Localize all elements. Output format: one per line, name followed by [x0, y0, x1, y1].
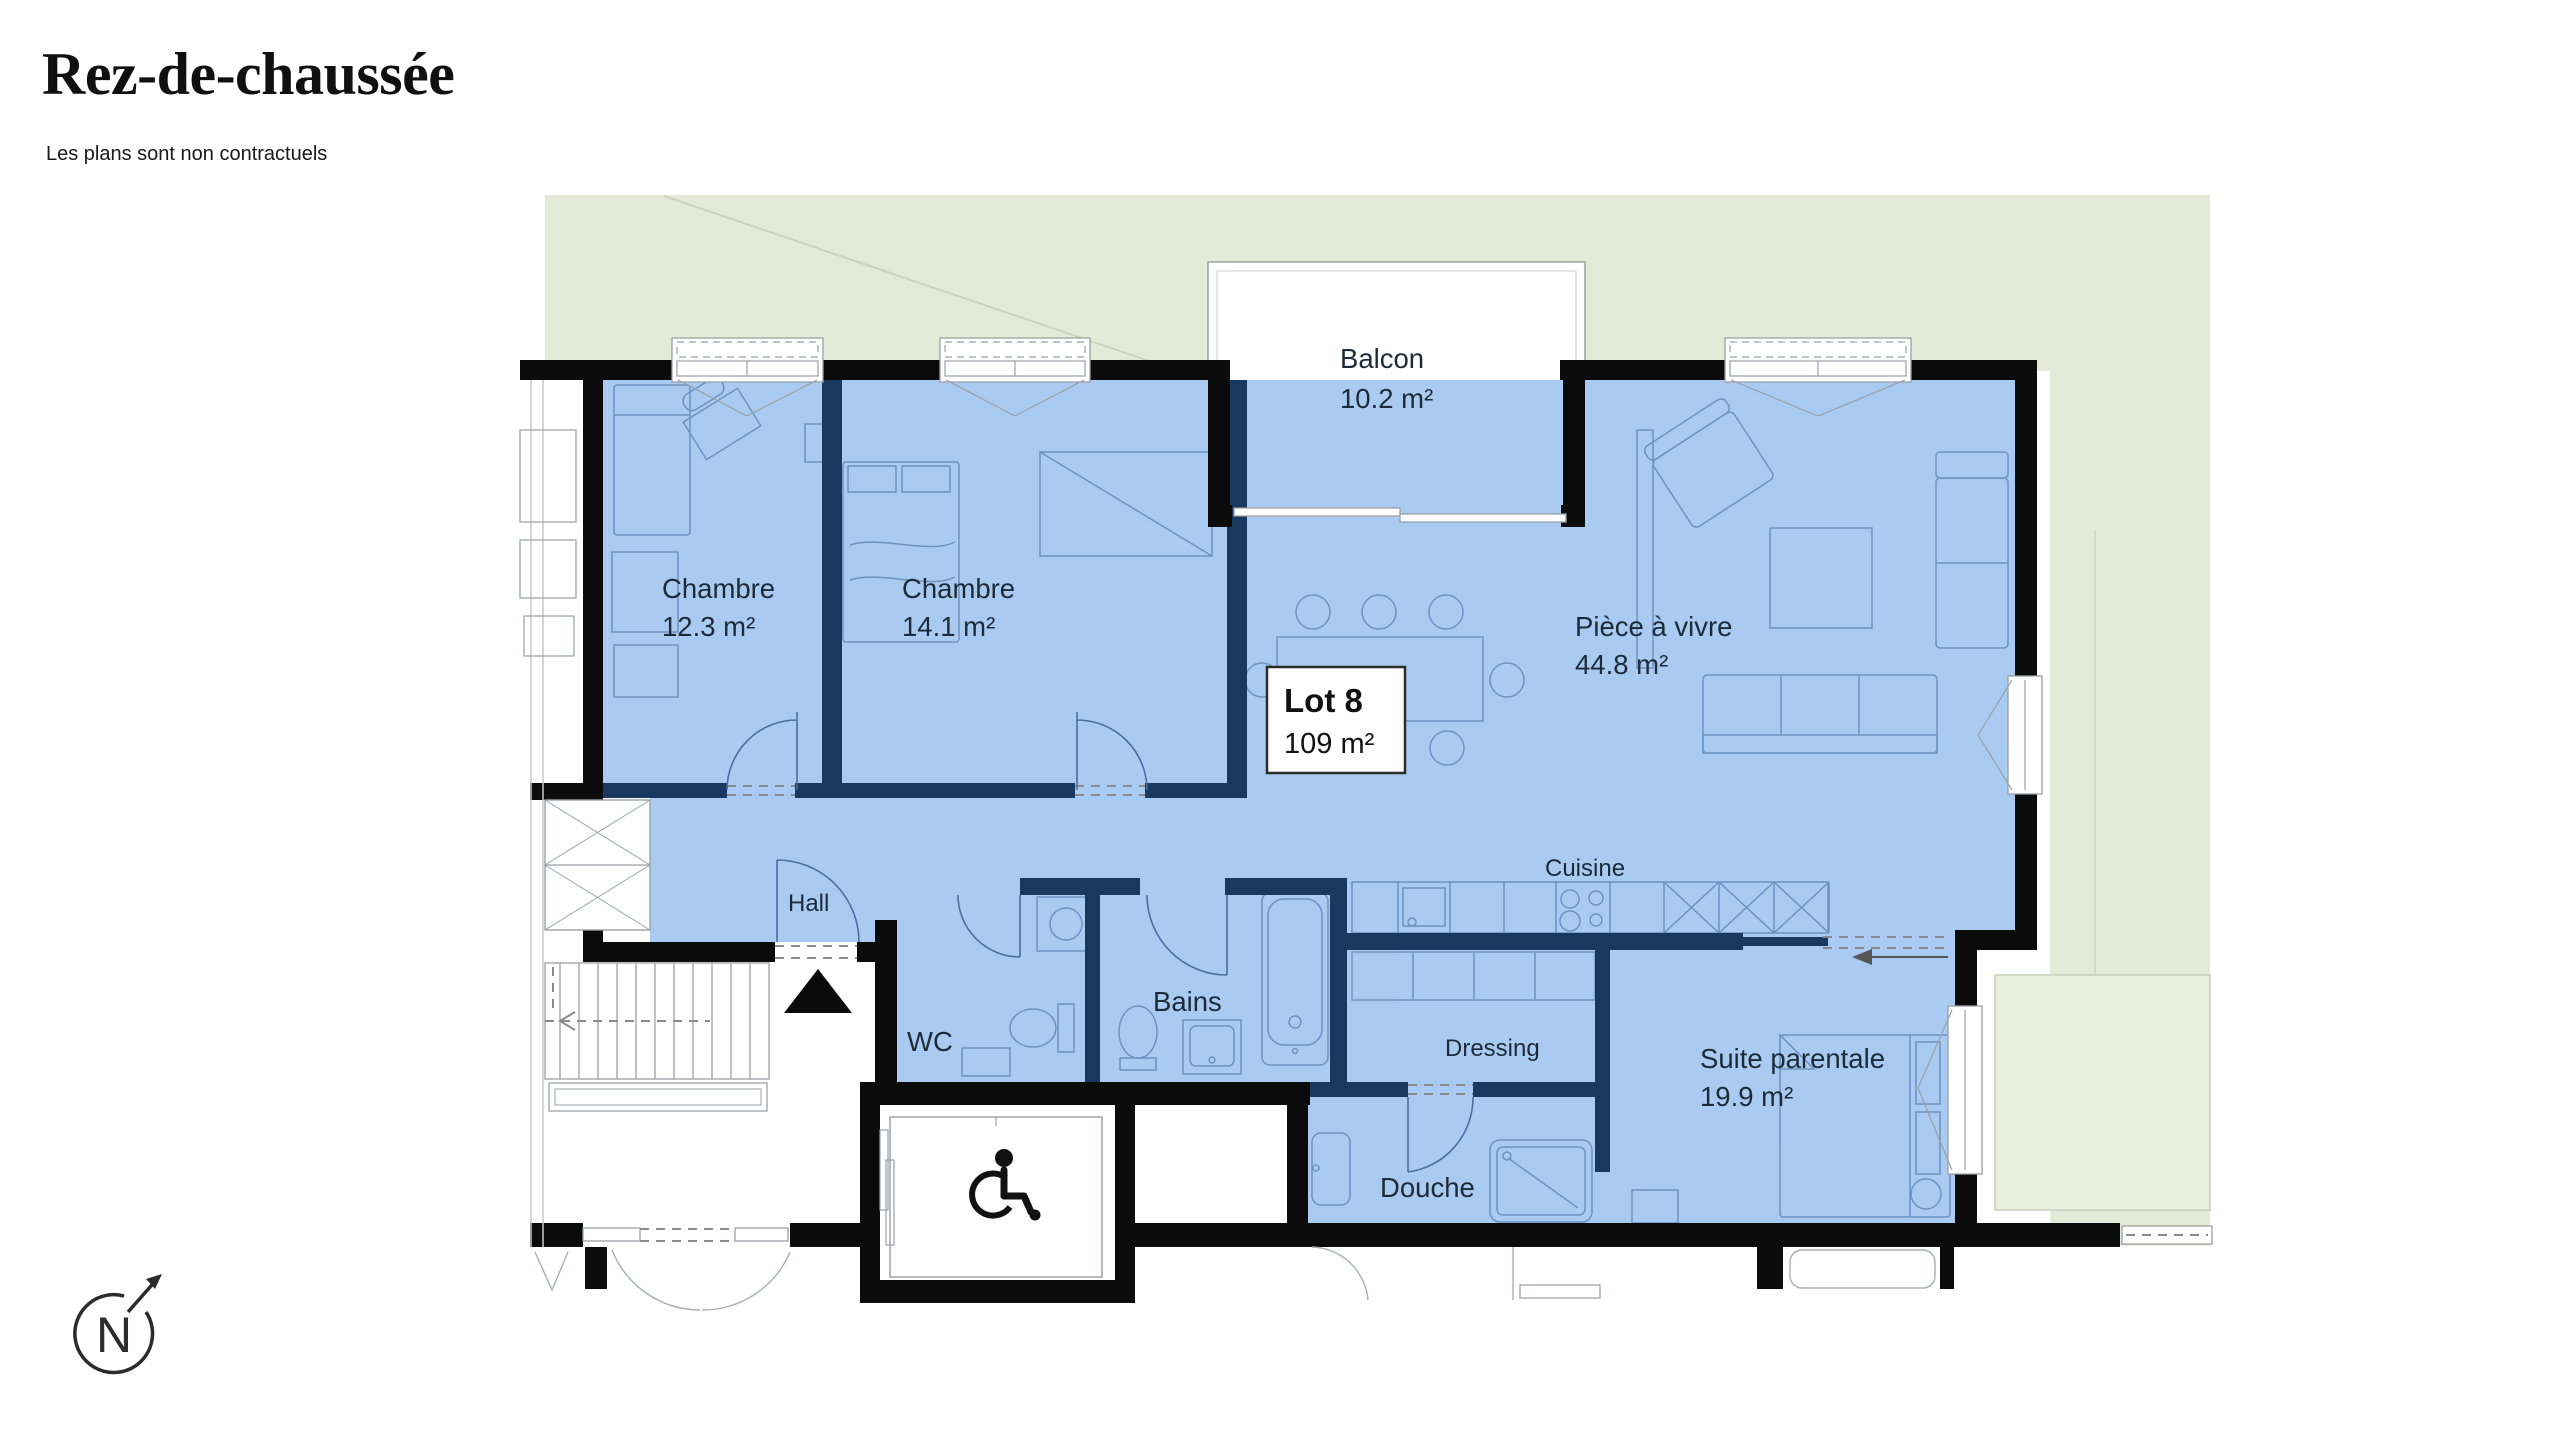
entry-sill	[735, 1228, 788, 1241]
room-area-piece-a-vivre: 44.8 m²	[1575, 649, 1668, 680]
floor-plan: Lot 8 109 m² Balcon 10.2 m² Chambre 12.3…	[0, 0, 2560, 1440]
compass: N	[75, 1274, 162, 1373]
stair-direction-icon	[784, 969, 852, 1013]
duct-shaft	[545, 800, 650, 930]
staircase	[545, 963, 769, 1111]
room-area-balcon: 10.2 m²	[1340, 383, 1433, 414]
room-label-suite-parentale: Suite parentale	[1700, 1043, 1885, 1074]
room-label-balcon: Balcon	[1340, 343, 1424, 374]
room-label-chambre2: Chambre	[902, 573, 1015, 604]
room-label-wc: WC	[907, 1026, 953, 1057]
north-label: N	[96, 1307, 132, 1363]
room-label-piece-a-vivre: Pièce à vivre	[1575, 611, 1732, 642]
room-area-chambre2: 14.1 m²	[902, 611, 995, 642]
room-label-hall: Hall	[788, 890, 829, 917]
room-area-chambre1: 12.3 m²	[662, 611, 755, 642]
room-label-douche: Douche	[1380, 1172, 1475, 1203]
room-label-dressing: Dressing	[1445, 1035, 1540, 1062]
terrace-area	[1995, 975, 2210, 1210]
room-label-bains: Bains	[1153, 986, 1222, 1017]
terrace-door-icon	[2122, 1226, 2212, 1244]
lot-area: 109 m²	[1284, 728, 1375, 760]
elevator	[880, 1117, 1102, 1277]
lot-name: Lot 8	[1284, 682, 1363, 719]
room-area-suite-parentale: 19.9 m²	[1700, 1081, 1793, 1112]
lot-badge[interactable]: Lot 8 109 m²	[1267, 667, 1405, 773]
room-label-cuisine: Cuisine	[1545, 855, 1625, 882]
room-label-chambre1: Chambre	[662, 573, 775, 604]
entry-sill	[583, 1228, 640, 1241]
